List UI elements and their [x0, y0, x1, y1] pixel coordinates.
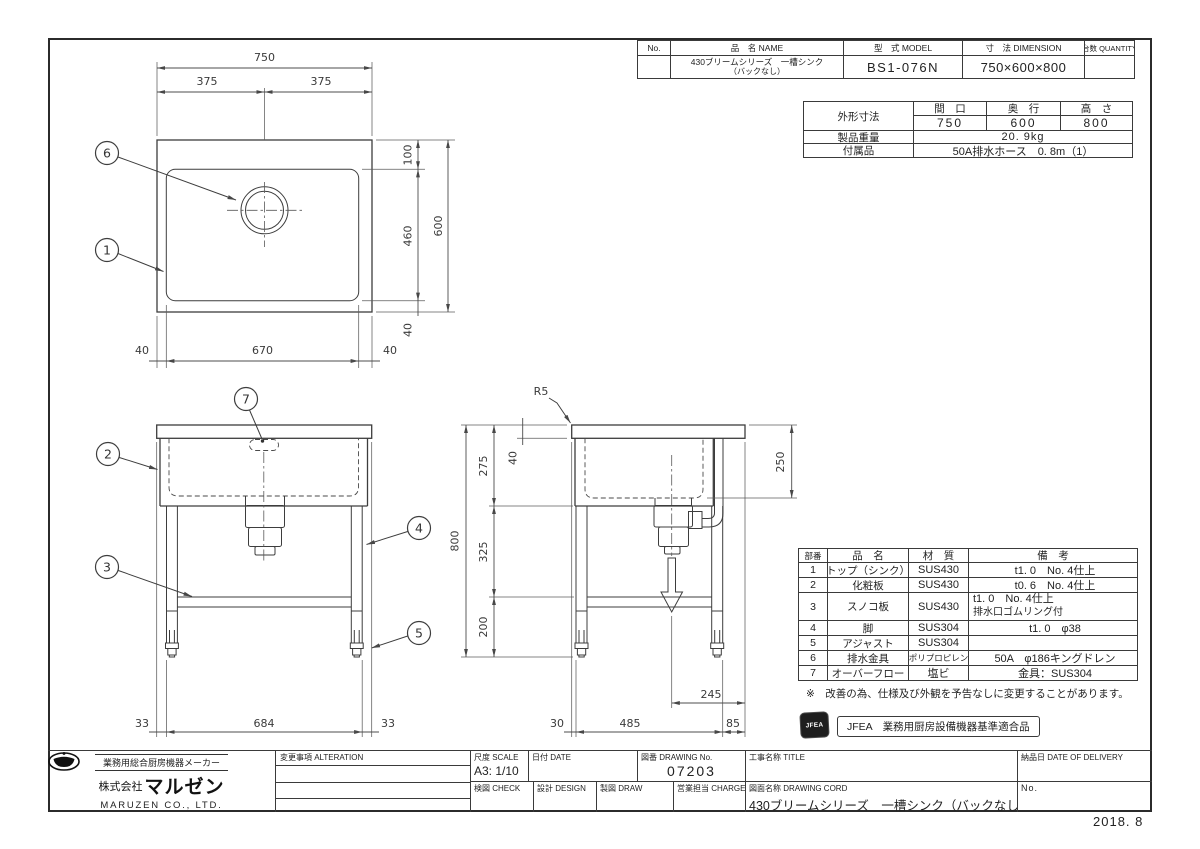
dim-half-right: 375	[311, 75, 332, 88]
spec-col-width: 間 口	[914, 102, 987, 116]
spec-outer-label: 外形寸法	[804, 102, 914, 131]
product-model-cell: BS1-076N	[844, 56, 963, 79]
parts-row-material: SUS304	[909, 621, 969, 636]
spec-accessory: 50A排水ホース 0. 8m（1）	[914, 144, 1133, 158]
front-view-drawing: 33 684 33 7 2 3 4 5	[96, 388, 431, 738]
delivery-label: 納品日 DATE OF DELIVERY	[1021, 752, 1149, 763]
spec-weight: 20. 9kg	[914, 131, 1133, 144]
product-name-line2: （バックなし）	[729, 67, 785, 76]
company-prefix: 株式会社	[98, 778, 142, 794]
drain-body-side	[654, 506, 693, 528]
spec-width: 750	[914, 116, 987, 131]
spec-depth: 600	[987, 116, 1061, 131]
parts-row-name: スノコ板	[828, 593, 909, 621]
charge-cell: 営業担当 CHARGE	[673, 781, 745, 812]
date-label: 日付 DATE	[532, 752, 634, 763]
spec-height: 800	[1061, 116, 1133, 131]
dim-total-width: 750	[254, 51, 275, 64]
parts-row-no: 3	[799, 593, 828, 621]
dim-slab-thickness: 40	[507, 451, 520, 465]
product-name-line1: 430ブリームシリーズ 一槽シンク	[691, 58, 824, 68]
parts-row-no: 4	[799, 621, 828, 636]
parts-remark-line2: 排水口ゴムリング付	[973, 607, 1063, 620]
parts-row-name: トップ（シンク）	[828, 563, 909, 578]
parts-row-remark: 金具：SUS304	[969, 666, 1138, 681]
parts-row-remark	[969, 636, 1138, 651]
scale-cell: 尺度 SCALE A3: 1/10	[470, 750, 528, 781]
parts-col-material: 材 質	[909, 549, 969, 563]
dim-side-leg: 200	[477, 617, 490, 638]
parts-row-remark: 50A φ186キングドレン	[969, 651, 1138, 666]
alteration-row	[276, 799, 470, 812]
plan-view-drawing: 750 375 375 100 460 40 600 40 670 40	[96, 51, 456, 368]
drain-body	[246, 506, 285, 528]
parts-row-material: ポリプロピレン	[909, 651, 969, 666]
spec-col-depth: 奥 行	[987, 102, 1061, 116]
date-cell: 日付 DATE	[528, 750, 637, 781]
parts-row-material: SUS430	[909, 578, 969, 593]
company-name-row: 株式会社マルゼン	[48, 772, 275, 799]
product-no-cell	[638, 56, 671, 79]
parts-row-name: 排水金具	[828, 651, 909, 666]
parts-row-material: SUS304	[909, 636, 969, 651]
spec-accessory-label: 付属品	[804, 144, 914, 158]
jfea-stamp-icon: JFEA	[799, 711, 829, 738]
company-en: MARUZEN CO., LTD.	[48, 800, 275, 811]
delivery-no-label: No.	[1021, 783, 1149, 793]
design-cell: 設計 DESIGN	[533, 781, 596, 812]
drawing-name-cell: 図面名称 DRAWING CORD 430ブリームシリーズ 一槽シンク（バックな…	[745, 781, 1017, 812]
parts-row-material: 塩ビ	[909, 666, 969, 681]
radius-label: R5	[534, 385, 549, 398]
parts-row-no: 6	[799, 651, 828, 666]
dim-left-inset: 40	[135, 344, 149, 357]
parts-row-no: 7	[799, 666, 828, 681]
drain-flow-arrow	[661, 558, 683, 612]
callout-7-label: 7	[242, 392, 250, 407]
product-quantity-cell	[1085, 56, 1135, 79]
drawing-no-cell: 図番 DRAWING No. 07203	[637, 750, 745, 781]
spec-weight-label: 製品重量	[804, 131, 914, 144]
parts-row-remark: t1. 0 No. 4仕上 排水口ゴムリング付	[969, 593, 1138, 621]
disclaimer-note: ※ 改善の為、仕様及び外観を予告なしに変更することがあります。	[806, 686, 1129, 701]
callout-4-label: 4	[415, 521, 423, 536]
check-label: 検図 CHECK	[474, 783, 530, 794]
spec-table: 外形寸法 間 口 奥 行 高 さ 750 600 800 製品重量 20. 9k…	[803, 101, 1133, 158]
scale-label: 尺度 SCALE	[474, 752, 525, 763]
delivery-no-cell: No.	[1017, 781, 1152, 812]
dim-drain-offset: 245	[701, 688, 722, 701]
callout-2-label: 2	[104, 447, 112, 462]
design-label: 設計 DESIGN	[537, 783, 593, 794]
parts-row-name: オーバーフロー	[828, 666, 909, 681]
drawing-no-value: 07203	[641, 763, 742, 779]
alteration-row	[276, 766, 470, 783]
product-dimension-cell: 750×600×800	[963, 56, 1085, 79]
alteration-row	[276, 783, 470, 799]
maruzen-logo	[48, 750, 80, 771]
dim-back-inset: 100	[402, 145, 415, 166]
dim-side-bright: 85	[726, 717, 740, 730]
project-title-label: 工事名称 TITLE	[749, 752, 1014, 763]
drawing-name-label: 図面名称 DRAWING CORD	[749, 783, 1014, 794]
alteration-section: 変更事項 ALTERATION	[275, 750, 470, 812]
dim-bowl-width: 670	[252, 344, 273, 357]
dim-total-height: 800	[449, 531, 462, 552]
scale-value: A3: 1/10	[474, 764, 525, 778]
parts-col-remarks: 備 考	[969, 549, 1138, 563]
project-title-cell: 工事名称 TITLE	[745, 750, 1017, 781]
dim-overflow-height: 250	[774, 452, 787, 473]
dim-front-left: 33	[135, 717, 149, 730]
dim-side-mid: 325	[477, 542, 490, 563]
maker-block: 業務用総合厨房機器メーカー 株式会社マルゼン MARUZEN CO., LTD.	[48, 750, 275, 812]
parts-row-name: 脚	[828, 621, 909, 636]
side-view-drawing: R5 800 275 40 325 200 250 245 30 4	[449, 385, 798, 737]
charge-label: 営業担当 CHARGE	[677, 783, 742, 794]
parts-row-no: 5	[799, 636, 828, 651]
alteration-label: 変更事項 ALTERATION	[276, 750, 470, 766]
callout-6-label: 6	[103, 146, 111, 161]
spec-col-height: 高 さ	[1061, 102, 1133, 116]
check-cell: 検図 CHECK	[470, 781, 533, 812]
parts-row-name: 化粧板	[828, 578, 909, 593]
company-name: マルゼン	[144, 772, 224, 799]
product-col-name: 品 名 NAME	[671, 41, 844, 56]
product-table: No. 品 名 NAME 型 式 MODEL 寸 法 DIMENSION 台数 …	[637, 40, 1135, 79]
dim-side-bspan: 485	[620, 717, 641, 730]
draw-cell: 製図 DRAW	[596, 781, 673, 812]
dim-side-bleft: 30	[550, 717, 564, 730]
revision-date: 2018. 8	[1093, 814, 1143, 829]
product-col-dimension: 寸 法 DIMENSION	[963, 41, 1085, 56]
dim-front-inset: 40	[402, 323, 415, 337]
drawing-no-label: 図番 DRAWING No.	[641, 752, 742, 763]
drawing-sheet: 750 375 375 100 460 40 600 40 670 40	[0, 0, 1200, 849]
product-col-model: 型 式 MODEL	[844, 41, 963, 56]
dim-front-right: 33	[381, 717, 395, 730]
parts-row-remark: t0. 6 No. 4仕上	[969, 578, 1138, 593]
parts-row-no: 1	[799, 563, 828, 578]
dim-total-depth: 600	[432, 216, 445, 237]
product-name-cell: 430ブリームシリーズ 一槽シンク （バックなし）	[671, 56, 844, 79]
parts-row-material: SUS430	[909, 563, 969, 578]
dim-half-left: 375	[197, 75, 218, 88]
overflow-pipe	[702, 438, 723, 527]
callout-5-label: 5	[415, 626, 423, 641]
drawing-name-value: 430ブリームシリーズ 一槽シンク（バックなし）	[749, 795, 1014, 812]
maker-tagline: 業務用総合厨房機器メーカー	[95, 754, 228, 771]
product-col-quantity: 台数 QUANTITY	[1085, 41, 1135, 56]
parts-col-name: 品 名	[828, 549, 909, 563]
parts-remark-line1: t1. 0 No. 4仕上	[973, 593, 1054, 607]
parts-row-remark: t1. 0 φ38	[969, 621, 1138, 636]
callout-3-label: 3	[103, 560, 111, 575]
cross-rail	[177, 597, 351, 607]
parts-col-no: 部番	[799, 549, 828, 563]
parts-row-no: 2	[799, 578, 828, 593]
parts-table: 部番 品 名 材 質 備 考 1 トップ（シンク） SUS430 t1. 0 N…	[798, 548, 1138, 681]
parts-row-name: アジャスト	[828, 636, 909, 651]
delivery-cell: 納品日 DATE OF DELIVERY	[1017, 750, 1152, 781]
dim-front-span: 684	[254, 717, 275, 730]
dim-right-inset: 40	[383, 344, 397, 357]
parts-row-remark: t1. 0 No. 4仕上	[969, 563, 1138, 578]
callout-1-label: 1	[103, 243, 111, 258]
parts-row-material: SUS430	[909, 593, 969, 621]
jfea-certification-badge: JFEA 業務用厨房設備機器基準適合品	[837, 716, 1040, 737]
dim-bowl-depth: 460	[402, 226, 415, 247]
product-col-no: No.	[638, 41, 671, 56]
draw-label: 製図 DRAW	[600, 783, 670, 794]
dim-side-top: 275	[477, 456, 490, 477]
